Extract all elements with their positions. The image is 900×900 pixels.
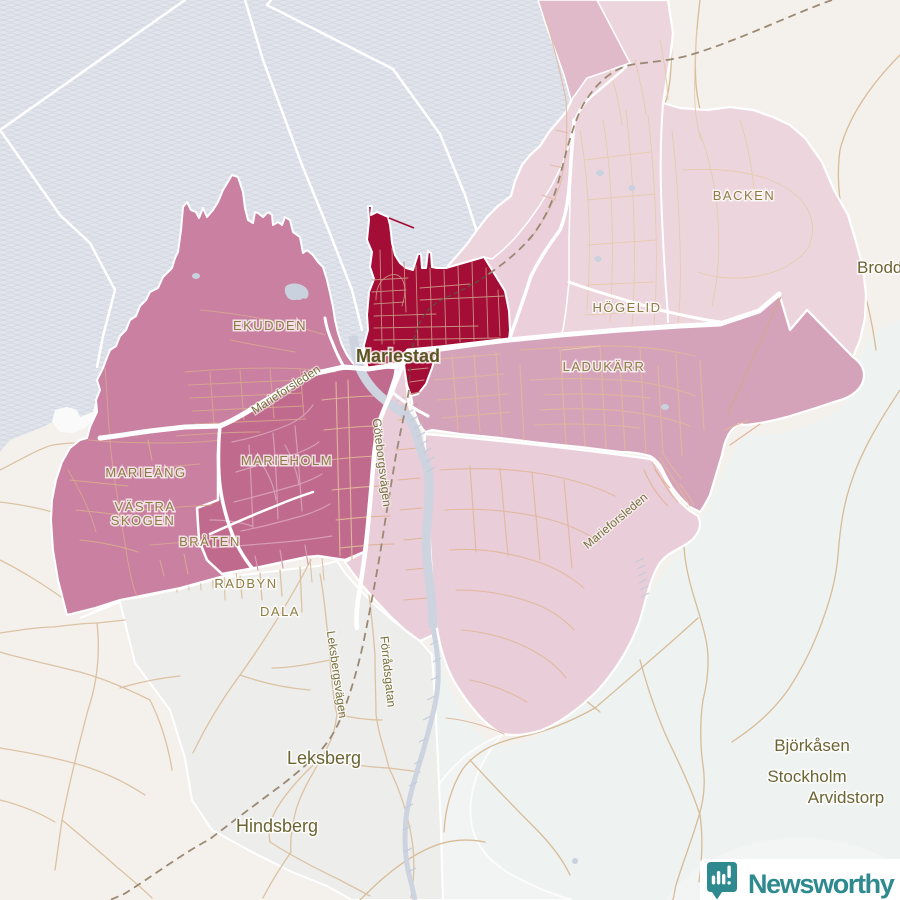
svg-text:HÖGELID: HÖGELID [592,300,661,315]
svg-text:MARIEHOLM: MARIEHOLM [241,453,333,468]
svg-text:BRÅTEN: BRÅTEN [179,534,241,549]
svg-text:Brodderud: Brodderud [857,258,900,277]
svg-text:Björkåsen: Björkåsen [774,736,850,755]
svg-text:VÄSTRA: VÄSTRA [114,499,175,514]
svg-text:MARIEÄNG: MARIEÄNG [105,465,186,480]
svg-text:Leksberg: Leksberg [287,748,361,768]
svg-text:RADBYN: RADBYN [214,576,277,591]
svg-text:BACKEN: BACKEN [713,188,775,203]
svg-text:DALA: DALA [260,604,300,619]
svg-text:SKOGEN: SKOGEN [111,513,176,528]
svg-text:Arvidstorp: Arvidstorp [808,788,885,807]
svg-text:EKUDDEN: EKUDDEN [233,318,307,333]
svg-text:Newsworthy: Newsworthy [748,869,895,899]
svg-text:LADUKÄRR: LADUKÄRR [563,359,646,374]
svg-text:Stockholm: Stockholm [767,767,846,786]
svg-text:Mariestad: Mariestad [356,346,440,366]
svg-text:Hindsberg: Hindsberg [236,816,318,836]
